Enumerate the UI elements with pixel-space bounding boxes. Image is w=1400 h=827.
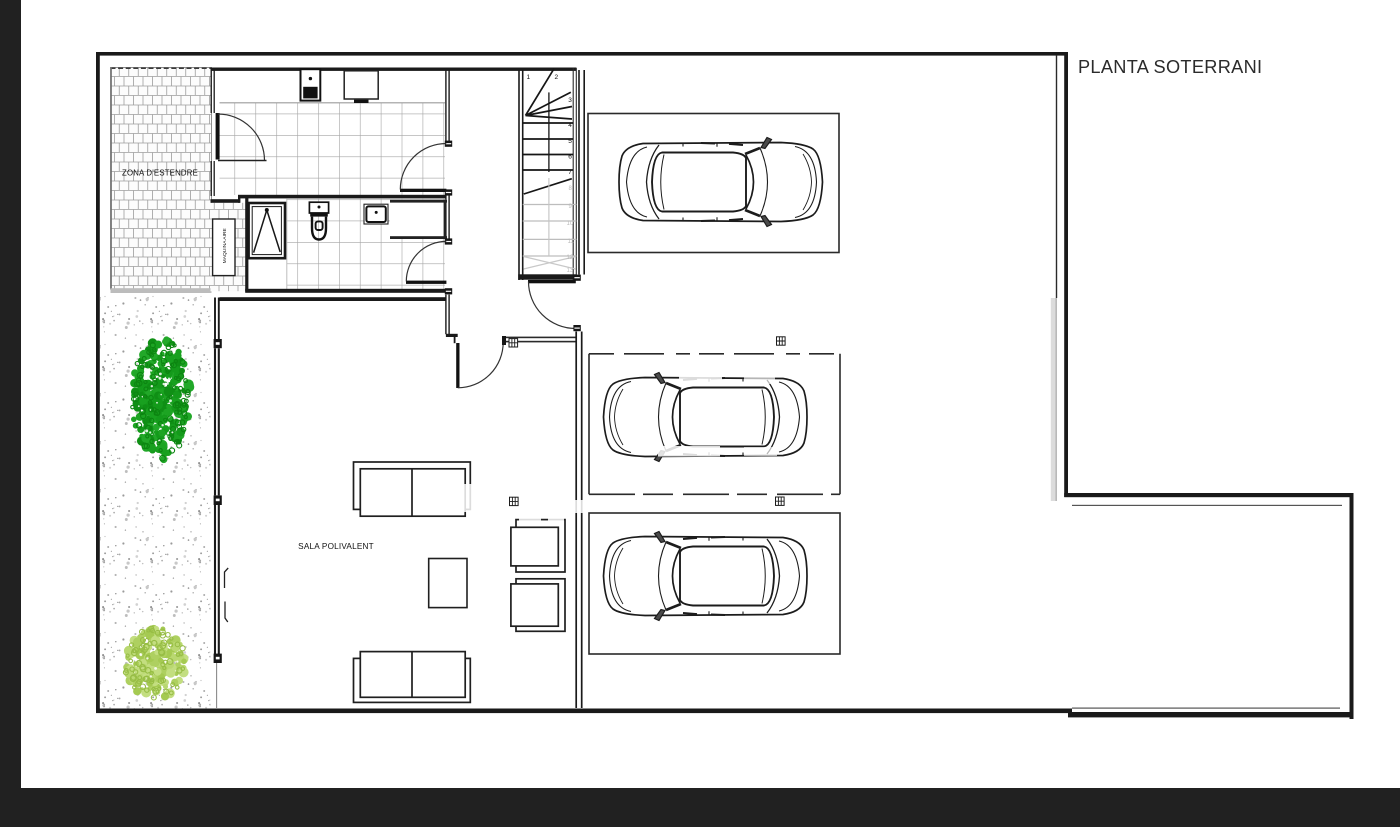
svg-text:7: 7 [568, 169, 572, 176]
svg-text:10: 10 [567, 221, 574, 227]
svg-text:12: 12 [567, 255, 574, 261]
svg-text:3: 3 [568, 97, 572, 104]
svg-text:2: 2 [555, 74, 559, 81]
svg-text:11: 11 [568, 239, 575, 245]
svg-text:1: 1 [527, 74, 531, 81]
svg-text:4: 4 [568, 122, 572, 129]
svg-text:13: 13 [567, 268, 574, 274]
svg-text:5: 5 [568, 138, 572, 145]
svg-text:6: 6 [568, 154, 572, 161]
svg-text:PLANTA SOTERRANI: PLANTA SOTERRANI [1078, 57, 1262, 77]
svg-text:ZONA D'ESTENDRE: ZONA D'ESTENDRE [122, 169, 198, 178]
svg-text:MAQUINA AIRE: MAQUINA AIRE [222, 228, 228, 264]
svg-text:SALA POLIVALENT: SALA POLIVALENT [298, 542, 374, 551]
